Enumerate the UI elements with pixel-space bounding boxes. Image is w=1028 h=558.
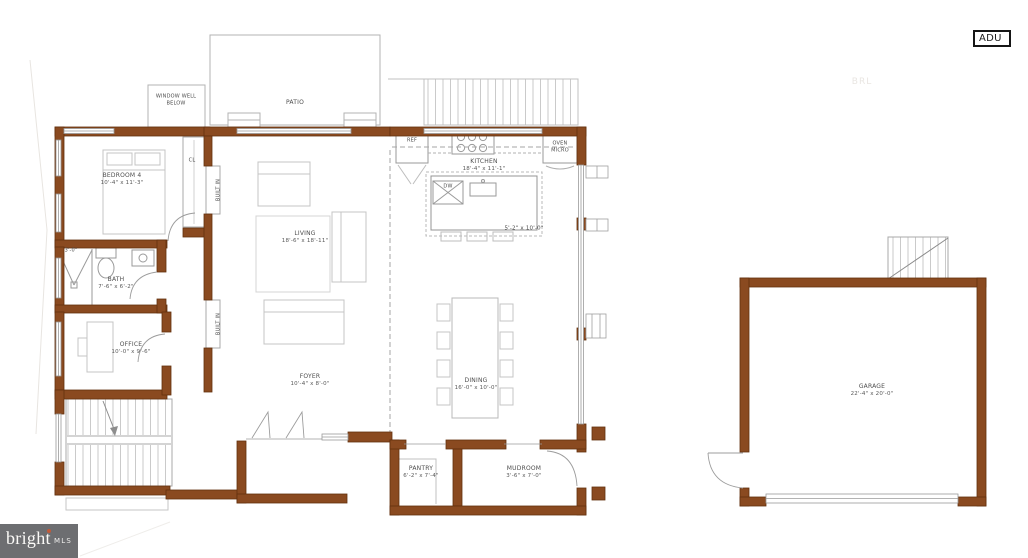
- east-wall-marks: [586, 166, 608, 338]
- adu-tag: ADU: [973, 30, 1011, 47]
- room-name: KITCHEN: [463, 158, 506, 166]
- room-dims: 18'-6" x 18'-11": [282, 238, 329, 245]
- room-dims: 3'-6" x 7'-0": [506, 473, 541, 480]
- room-label-dining: DINING 16'-0" x 10'-0": [455, 377, 498, 393]
- room-label-pantry: PANTRY 6'-2" x 7'-4": [403, 465, 438, 481]
- window-well-label: WINDOW WELL BELOW: [156, 93, 196, 107]
- closet-label: CL: [189, 158, 196, 165]
- garage-stairs: [888, 237, 948, 279]
- refrigerator-label: REF: [407, 138, 417, 145]
- room-label-foyer: FOYER 10'-4" x 8'-0": [290, 373, 329, 389]
- built-in-label-upper: BUILT IN: [216, 179, 223, 201]
- room-dims: 10'-0" x 9'-6": [111, 349, 150, 356]
- room-dims: 16'-0" x 10'-0": [455, 385, 498, 392]
- room-label-bedroom4: BEDROOM 4 10'-4" x 11'-3": [101, 172, 144, 188]
- brightmls-dot-icon: [47, 529, 51, 533]
- dishwasher-label: DW: [443, 184, 452, 191]
- porch-posts: [592, 427, 605, 500]
- room-label-living: LIVING 18'-6" x 18'-11": [282, 230, 329, 246]
- room-name: OFFICE: [111, 341, 150, 349]
- room-name: FOYER: [290, 373, 329, 381]
- room-name: BATH: [98, 276, 133, 284]
- patio-outline: [210, 35, 380, 127]
- room-name: LIVING: [282, 230, 329, 238]
- room-label-patio: PATIO: [286, 99, 304, 107]
- kitchen-fixtures: [396, 130, 577, 241]
- room-name: PATIO: [286, 99, 304, 107]
- room-name: GARAGE: [851, 383, 894, 391]
- room-dims: 22'-4" x 20'-0": [851, 391, 894, 398]
- built-in-label-lower: BUILT IN: [216, 313, 223, 335]
- room-dims: 10'-4" x 11'-3": [101, 180, 144, 187]
- deck-hatch: [388, 79, 578, 125]
- brightmls-brand-text: bright: [6, 528, 51, 549]
- brl-setback-label: BRL: [852, 76, 872, 88]
- room-name: PANTRY: [403, 465, 438, 473]
- room-dims: 18'-4" x 11'-1": [463, 166, 506, 173]
- room-name: BEDROOM 4: [101, 172, 144, 180]
- shower-dim-label: 3'-0": [65, 248, 78, 255]
- room-name: DINING: [455, 377, 498, 385]
- room-label-mudroom: MUDROOM 3'-6" x 7'-0": [506, 465, 541, 481]
- island-dims-label: 5'-2" x 10'-0": [504, 225, 543, 232]
- closet-builtins: [183, 137, 220, 348]
- floor-plan-page: BEDROOM 4 10'-4" x 11'-3" BATH 7'-6" x 6…: [0, 0, 1028, 558]
- brightmls-mls-text: MLS: [54, 537, 72, 545]
- room-dims: 10'-4" x 8'-0": [290, 381, 329, 388]
- room-name: MUDROOM: [506, 465, 541, 473]
- room-dims: 7'-6" x 6'-2": [98, 284, 133, 291]
- room-label-office: OFFICE 10'-0" x 9'-6": [111, 341, 150, 357]
- oven-micro-label: OVEN MICRO: [551, 140, 569, 154]
- room-label-kitchen: KITCHEN 18'-4" x 11'-1": [463, 158, 506, 174]
- room-label-bath: BATH 7'-6" x 6'-2": [98, 276, 133, 292]
- room-label-garage: GARAGE 22'-4" x 20'-0": [851, 383, 894, 399]
- brightmls-watermark: bright MLS: [0, 524, 78, 558]
- room-dims: 6'-2" x 7'-4": [403, 473, 438, 480]
